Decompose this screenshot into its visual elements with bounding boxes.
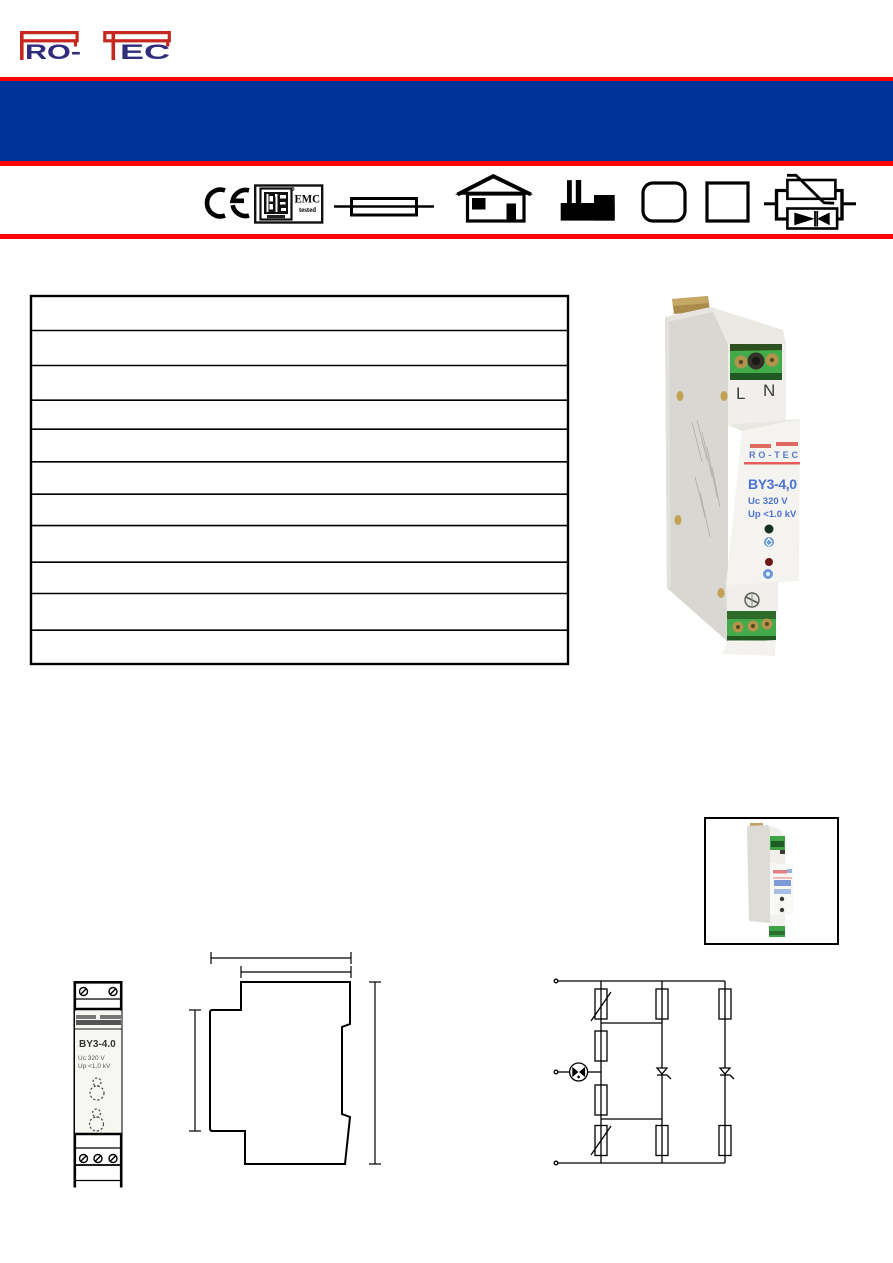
svg-text:EC: EC [120, 41, 170, 62]
svg-text:RO-: RO- [25, 41, 81, 62]
svg-text:Uc 320 V: Uc 320 V [78, 1055, 105, 1062]
svg-text:BY3-4.0: BY3-4.0 [79, 1039, 116, 1050]
svg-text:L: L [736, 384, 745, 403]
svg-text:Up <1.0 kV: Up <1.0 kV [748, 509, 797, 520]
svg-text:BY3-4,0: BY3-4,0 [748, 476, 797, 492]
svg-text:EMC: EMC [295, 192, 321, 206]
svg-text:N: N [763, 381, 775, 400]
svg-text:Uc 320 V: Uc 320 V [748, 496, 788, 507]
svg-text:tested: tested [299, 206, 316, 214]
svg-text:Up <1.0 kV: Up <1.0 kV [78, 1063, 111, 1070]
